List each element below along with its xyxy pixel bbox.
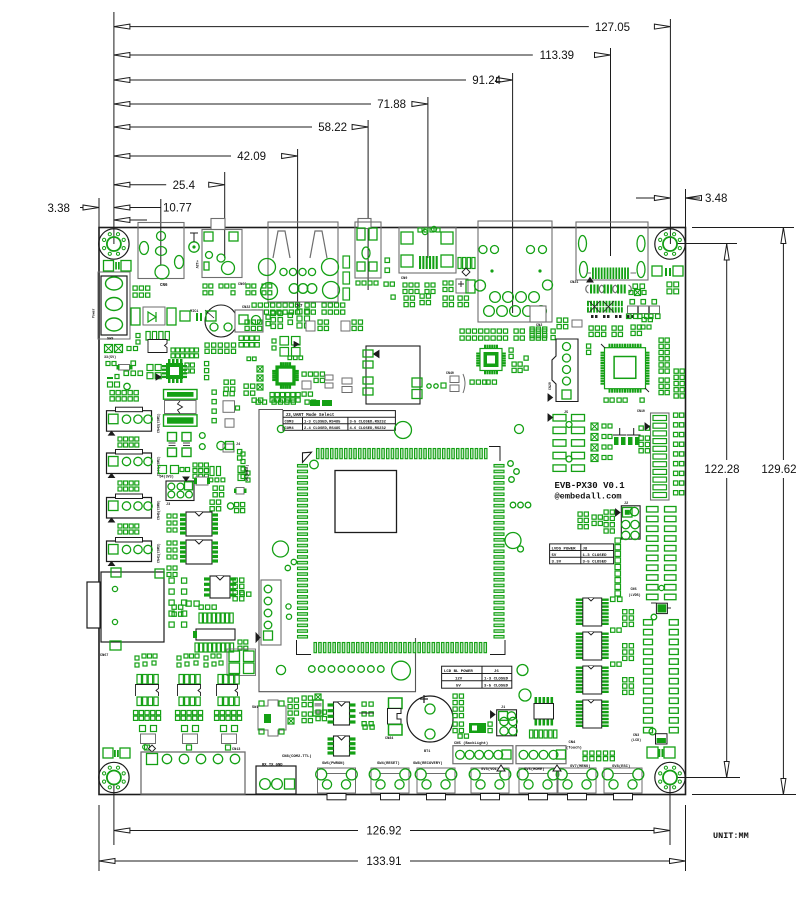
svg-text:113.39: 113.39 [540,50,574,62]
svg-text:133.91: 133.91 [366,856,401,868]
svg-text:58.22: 58.22 [318,122,347,134]
svg-text:(LCD): (LCD) [631,738,641,743]
svg-text:LVDS POWER: LVDS POWER [552,547,577,551]
svg-text:3-5 CLOSED: 3-5 CLOSED [583,561,608,565]
svg-text:71.88: 71.88 [377,99,406,111]
svg-text:126.92: 126.92 [366,826,401,838]
svg-text:@embedall.com: @embedall.com [555,492,622,502]
svg-text:CN21: CN21 [570,281,578,285]
svg-text:1-3 CLOSED: 1-3 CLOSED [583,554,608,558]
svg-text:CN4: CN4 [569,741,577,745]
svg-text:CN10: CN10 [637,409,645,413]
svg-text:SW4(RESET): SW4(RESET) [377,761,400,766]
svg-text:COM3: COM3 [285,421,295,425]
svg-text:3.3V: 3.3V [552,561,562,565]
svg-text:42.09: 42.09 [237,151,266,163]
svg-text:CN9: CN9 [401,277,407,281]
svg-text:UNIT:MM: UNIT:MM [713,831,749,841]
svg-text:CN41(COM3): CN41(COM3) [157,543,161,563]
svg-text:SV8(ESC): SV8(ESC) [612,764,630,769]
svg-text:CN8(COM2-TTL): CN8(COM2-TTL) [282,754,312,759]
svg-text:26(USER): 26(USER) [245,465,250,481]
svg-text:SW8(RECOVERY): SW8(RECOVERY) [413,761,443,766]
svg-text:CN84: CN84 [385,737,393,741]
svg-text:3-5 CLOSED: 3-5 CLOSED [484,685,509,689]
svg-text:J6: J6 [494,670,499,674]
svg-text:4-6 CLOSED,RS232: 4-6 CLOSED,RS232 [350,427,387,431]
svg-text:3.48: 3.48 [705,193,727,205]
svg-text:5V: 5V [456,685,461,689]
svg-text:Power: Power [92,308,96,318]
svg-text:CN22: CN22 [242,306,250,310]
svg-text:5V: 5V [552,554,557,558]
svg-text:129.62: 129.62 [761,464,796,476]
svg-text:(Touch): (Touch) [566,746,582,751]
svg-text:CN6: CN6 [160,284,168,288]
svg-text:J3: J3 [166,503,170,507]
svg-text:+12V: +12V [194,260,198,269]
svg-text:10.77: 10.77 [163,203,192,215]
svg-text:BT1: BT1 [424,750,430,754]
svg-text:2-4 CLOSED,RS485: 2-4 CLOSED,RS485 [304,427,341,431]
svg-text:SV7(MENU): SV7(MENU) [570,764,591,769]
svg-text:LCD BL POWER: LCD BL POWER [444,670,473,674]
svg-text:J4: J4 [236,443,240,447]
svg-text:12V: 12V [455,677,463,681]
svg-text:SW6(PWRON): SW6(PWRON) [322,761,345,766]
svg-text:122.28: 122.28 [704,464,739,476]
svg-text:3-5 CLOSED,RS232: 3-5 CLOSED,RS232 [350,421,387,425]
svg-text:25.4: 25.4 [173,180,196,192]
svg-text:COM4: COM4 [285,427,295,431]
svg-text:D4(3V3): D4(3V3) [160,475,174,480]
svg-text:SW1: SW1 [252,706,258,710]
svg-text:SW9: SW9 [107,338,113,342]
svg-text:CN13: CN13 [232,748,240,752]
svg-text:CN3: CN3 [633,734,639,738]
svg-text:1-3 CLOSED,RS485: 1-3 CLOSED,RS485 [304,421,341,425]
svg-text:SV5(HOME): SV5(HOME) [524,767,545,772]
svg-text:CN6: CN6 [631,588,637,592]
svg-text:33(5V): 33(5V) [104,355,116,360]
svg-text:J3,UART Mode Select: J3,UART Mode Select [286,413,335,418]
svg-text:CN66: CN66 [238,283,246,287]
svg-text:CN45(COM0): CN45(COM0) [157,500,161,520]
svg-text:CN29: CN29 [548,382,552,390]
svg-text:91.24: 91.24 [472,75,501,87]
svg-text:CN40: CN40 [446,371,454,375]
svg-text:CN67: CN67 [100,654,108,658]
svg-text:3.38: 3.38 [48,203,70,215]
svg-text:(LVDS): (LVDS) [629,593,641,598]
svg-text:1-3 CLOSED: 1-3 CLOSED [484,677,509,681]
svg-text:J8: J8 [583,547,588,551]
svg-text:127.05: 127.05 [595,22,630,34]
svg-text:EVB-PX30 V0.1: EVB-PX30 V0.1 [555,481,626,491]
svg-text:CN43(COM1): CN43(COM1) [157,413,161,433]
